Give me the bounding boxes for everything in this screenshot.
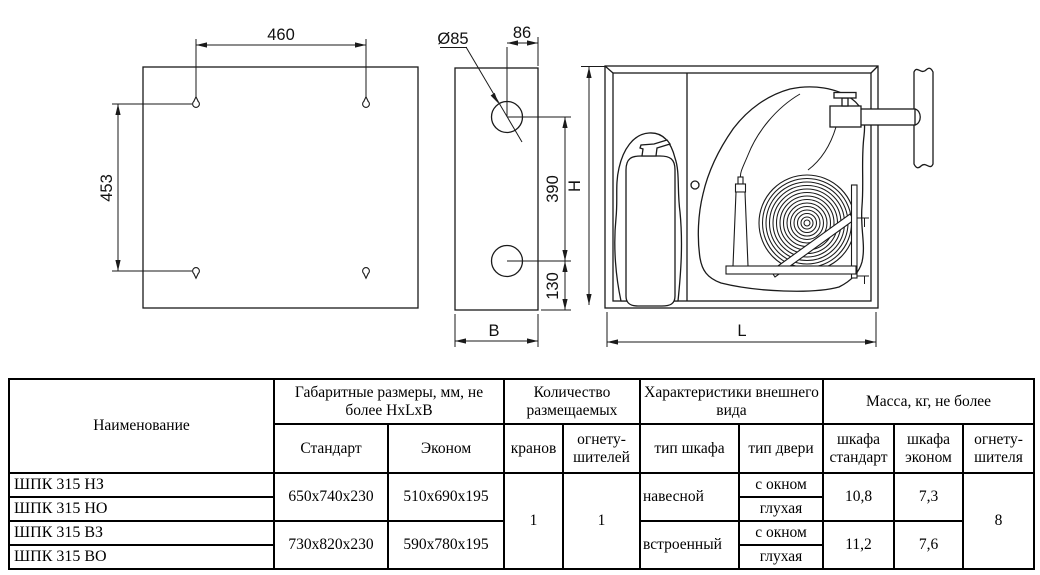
col-header-quantity-group: Количество размещаемых — [504, 379, 640, 424]
col-header-extinguishers: огнету-шителей — [563, 424, 640, 473]
back-panel-outline — [143, 67, 418, 308]
cell-taps-count: 1 — [504, 473, 563, 569]
cell-mass-standard-34: 11,2 — [823, 521, 894, 569]
dim-label-dia85: Ø85 — [437, 30, 468, 48]
mounting-hole-bottom-right — [363, 268, 370, 279]
feed-pipe — [860, 109, 920, 125]
col-header-name: Наименование — [9, 379, 274, 473]
cell-row1-name: ШПК 315 НЗ — [9, 473, 274, 497]
col-header-taps: кранов — [504, 424, 563, 473]
cell-mass-extinguisher: 8 — [963, 473, 1034, 569]
cell-cabinet-type-34: встроенный — [640, 521, 739, 569]
col-header-mass-econom: шкафа эконом — [894, 424, 963, 473]
back-panel-view: 460 453 — [98, 26, 418, 308]
dimension-390: 390 — [544, 117, 565, 261]
cell-door-2: глухая — [739, 497, 823, 521]
dimension-L: L — [607, 312, 876, 347]
cell-row2-name: ШПК 315 НО — [9, 497, 274, 521]
dim-label-453: 453 — [98, 174, 116, 202]
col-header-appearance-group: Характеристики внешнего вида — [640, 379, 823, 424]
dim-label-130: 130 — [544, 272, 562, 300]
cell-dims-standard-12: 650x740x230 — [274, 473, 388, 521]
hose-shelf — [726, 266, 856, 274]
dim-label-L: L — [737, 322, 746, 340]
col-header-dimensions-group: Габаритные размеры, мм, не более HxLxB — [274, 379, 504, 424]
cell-door-3: с окном — [739, 521, 823, 545]
side-view: 86 Ø85 390 130 — [437, 24, 571, 347]
col-header-mass-extinguisher: огнету-шителя — [963, 424, 1034, 473]
cell-mass-econom-12: 7,3 — [894, 473, 963, 521]
cell-extinguishers-count: 1 — [563, 473, 640, 569]
leader-arrow — [491, 93, 499, 104]
cell-mass-econom-34: 7,6 — [894, 521, 963, 569]
dimension-86: 86 — [507, 24, 538, 66]
dim-label-H: H — [566, 180, 584, 192]
door-knob — [691, 181, 699, 189]
drawing-sheet: 460 453 86 — [0, 0, 1040, 575]
col-header-cabinet-type: тип шкафа — [640, 424, 739, 473]
wall-pipe — [914, 68, 933, 167]
col-header-mass-standard: шкафа стандарт — [823, 424, 894, 473]
col-header-mass-group: Масса, кг, не более — [823, 379, 1034, 424]
hose-nozzle — [733, 177, 748, 266]
header-row-groups: Наименование Габаритные размеры, мм, не … — [9, 379, 1034, 424]
cell-door-4: глухая — [739, 545, 823, 569]
cell-row4-name: ШПК 315 ВО — [9, 545, 274, 569]
specification-table: Наименование Габаритные размеры, мм, не … — [8, 378, 1035, 570]
cell-dims-econom-34: 590x780x195 — [388, 521, 504, 569]
cell-dims-econom-12: 510x690x195 — [388, 473, 504, 521]
dimension-130: 130 — [541, 261, 571, 310]
valve — [830, 93, 861, 128]
dimension-dia85: Ø85 — [437, 30, 522, 142]
cell-mass-standard-12: 10,8 — [823, 473, 894, 521]
side-outline — [455, 68, 538, 310]
dimension-460: 460 — [196, 26, 366, 97]
cell-row3-name: ШПК 315 ВЗ — [9, 521, 274, 545]
mounting-hole-bottom-left — [193, 268, 200, 279]
cell-dims-standard-34: 730x820x230 — [274, 521, 388, 569]
cell-cabinet-type-12: навесной — [640, 473, 739, 521]
fire-extinguisher-body — [626, 156, 675, 306]
dimension-B: B — [455, 314, 538, 347]
mounting-hole-top-right — [363, 97, 370, 108]
dim-label-460: 460 — [267, 26, 295, 44]
col-header-door-type: тип двери — [739, 424, 823, 473]
col-header-econom: Эконом — [388, 424, 504, 473]
cell-door-1: с окном — [739, 473, 823, 497]
dim-label-390: 390 — [544, 175, 562, 203]
reel-bracket — [852, 185, 858, 278]
front-view: H L — [566, 66, 933, 347]
dimension-453: 453 — [98, 104, 192, 271]
table-row: ШПК 315 НЗ 650x740x230 510x690x195 1 1 н… — [9, 473, 1034, 497]
col-header-standard: Стандарт — [274, 424, 388, 473]
dim-label-B: B — [488, 322, 499, 340]
dim-label-86: 86 — [513, 24, 531, 42]
mounting-hole-top-left — [193, 97, 200, 108]
dimension-H: H — [566, 67, 606, 306]
technical-drawing: 460 453 86 — [0, 0, 1040, 372]
